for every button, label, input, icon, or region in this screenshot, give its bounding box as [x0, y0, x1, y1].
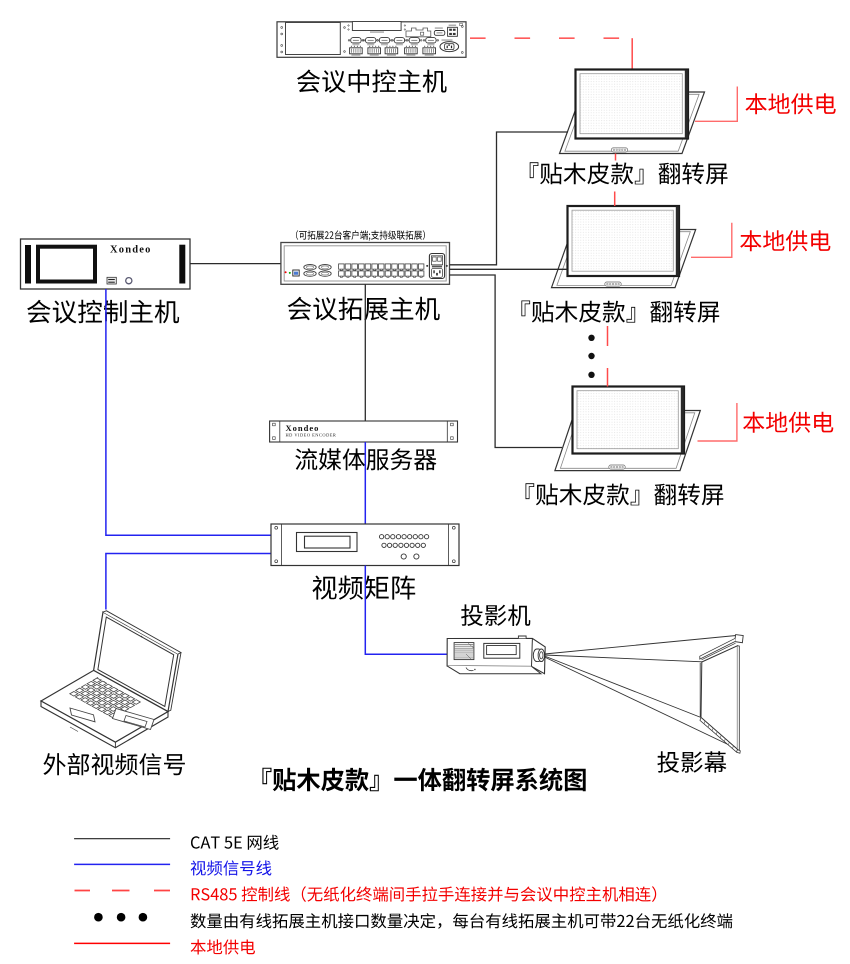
svg-text:Xondeo: Xondeo	[110, 245, 152, 256]
svg-text:Xondeo: Xondeo	[286, 423, 320, 433]
svg-text:HD VIDEO ENCODER: HD VIDEO ENCODER	[286, 433, 337, 438]
